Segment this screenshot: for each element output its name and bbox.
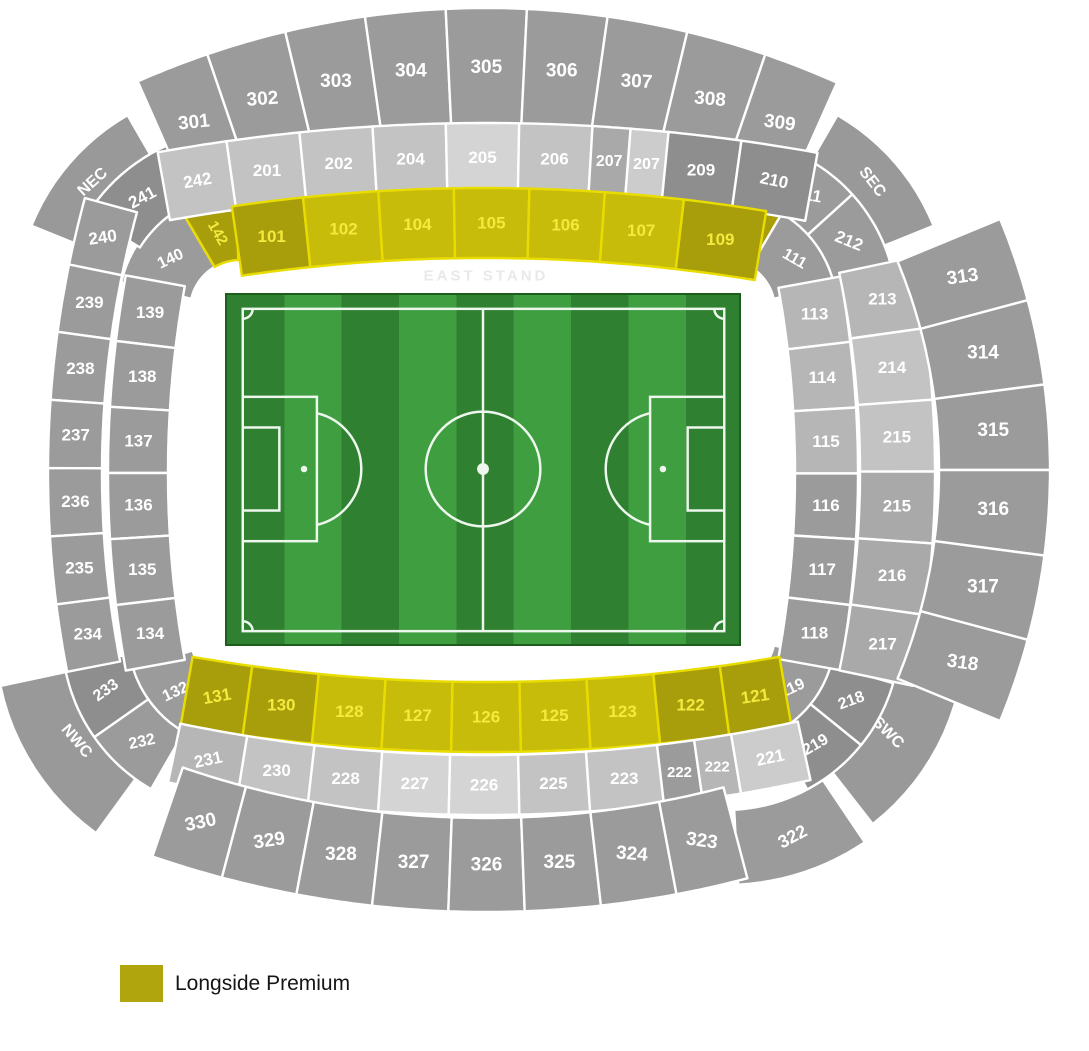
section-127[interactable]: 127: [382, 679, 453, 752]
section-106[interactable]: 106: [528, 189, 605, 262]
section-238[interactable]: 238: [51, 332, 112, 404]
section-215[interactable]: 215: [858, 400, 935, 472]
section-label-303: 303: [320, 71, 352, 92]
section-label-302: 302: [246, 88, 279, 111]
section-label-105: 105: [477, 214, 505, 233]
section-114[interactable]: 114: [788, 342, 857, 411]
left-penalty-spot: [301, 466, 307, 472]
section-label-117: 117: [808, 560, 835, 579]
section-116[interactable]: 116: [793, 473, 858, 539]
section-214[interactable]: 214: [851, 328, 933, 405]
right-goal-area: [688, 427, 725, 510]
section-label-102: 102: [329, 219, 357, 238]
section-label-213: 213: [868, 290, 896, 309]
section-label-235: 235: [65, 558, 93, 577]
section-label-109: 109: [706, 230, 734, 249]
section-136[interactable]: 136: [108, 473, 170, 539]
section-label-239: 239: [75, 293, 103, 312]
legend: Longside Premium: [120, 965, 350, 1002]
section-label-114: 114: [808, 368, 836, 387]
section-204[interactable]: 204: [373, 123, 448, 195]
section-label-104: 104: [403, 215, 432, 234]
corner-arc: [243, 309, 253, 319]
section-label-115: 115: [812, 432, 839, 451]
center-spot: [478, 464, 489, 475]
section-323[interactable]: 323: [659, 787, 747, 894]
section-123[interactable]: 123: [587, 674, 661, 749]
section-label-222: 222: [667, 764, 692, 781]
section-207[interactable]: 207: [589, 126, 631, 197]
section-label-135: 135: [128, 560, 156, 579]
section-113[interactable]: 113: [778, 277, 850, 350]
section-216[interactable]: 216: [851, 538, 933, 615]
section-226[interactable]: 226: [449, 755, 520, 815]
section-215[interactable]: 215: [858, 472, 935, 544]
section-label-323: 323: [685, 828, 719, 853]
section-205[interactable]: 205: [446, 123, 519, 192]
section-202[interactable]: 202: [299, 127, 376, 202]
section-label-215: 215: [883, 497, 911, 516]
section-label-318: 318: [945, 650, 979, 675]
section-label-308: 308: [693, 87, 726, 111]
section-242[interactable]: 242: [158, 141, 237, 220]
section-label-314: 314: [967, 342, 999, 363]
section-239[interactable]: 239: [58, 265, 122, 340]
section-label-315: 315: [977, 420, 1009, 441]
section-label-137: 137: [124, 431, 152, 450]
section-label-306: 306: [546, 61, 578, 82]
section-label-134: 134: [136, 624, 165, 643]
section-label-122: 122: [677, 696, 705, 715]
section-235[interactable]: 235: [50, 533, 110, 604]
section-125[interactable]: 125: [520, 679, 591, 752]
section-122[interactable]: 122: [653, 666, 729, 743]
section-126[interactable]: 126: [451, 682, 521, 752]
section-label-127: 127: [403, 706, 431, 725]
section-label-307: 307: [620, 70, 653, 93]
section-128[interactable]: 128: [312, 674, 386, 749]
section-322[interactable]: 322: [734, 780, 865, 885]
section-223[interactable]: 223: [586, 745, 664, 812]
section-label-121: 121: [740, 685, 771, 708]
section-228[interactable]: 228: [308, 745, 383, 811]
section-304[interactable]: 304: [365, 9, 451, 134]
section-115[interactable]: 115: [793, 408, 858, 474]
section-label-206: 206: [540, 149, 568, 168]
section-315[interactable]: 315: [934, 384, 1050, 470]
section-label-329: 329: [252, 828, 286, 853]
section-107[interactable]: 107: [600, 192, 684, 269]
section-225[interactable]: 225: [518, 752, 590, 815]
section-206[interactable]: 206: [518, 123, 593, 195]
section-label-128: 128: [335, 702, 363, 721]
section-label-324: 324: [615, 842, 649, 866]
left-penalty-arc: [317, 413, 361, 525]
pitch: [225, 293, 741, 646]
section-327[interactable]: 327: [372, 812, 452, 911]
section-label-309: 309: [763, 110, 797, 135]
section-137[interactable]: 137: [108, 407, 170, 473]
section-label-230: 230: [263, 761, 291, 780]
section-label-240: 240: [87, 226, 118, 249]
section-label-222: 222: [705, 758, 730, 775]
section-326[interactable]: 326: [448, 817, 524, 912]
pitch-markings: [227, 295, 739, 644]
section-label-123: 123: [608, 702, 636, 721]
stand-label-east: EAST STAND: [424, 268, 549, 285]
section-label-228: 228: [331, 769, 359, 788]
section-label-138: 138: [128, 367, 156, 386]
section-label-130: 130: [267, 696, 295, 715]
section-label-136: 136: [124, 496, 152, 515]
section-label-236: 236: [61, 492, 89, 511]
section-label-238: 238: [66, 359, 94, 378]
section-138[interactable]: 138: [110, 341, 176, 411]
section-121[interactable]: 121: [720, 657, 792, 736]
section-label-215: 215: [883, 427, 911, 446]
stadium-seating-map: NECSECNWCSWC1401421101112412112121322322…: [0, 0, 1089, 1051]
section-109[interactable]: 109: [676, 200, 766, 281]
section-label-207: 207: [633, 156, 660, 173]
section-label-204: 204: [396, 150, 425, 169]
section-label-226: 226: [470, 776, 498, 795]
section-label-118: 118: [801, 624, 828, 643]
section-label-317: 317: [967, 577, 999, 598]
section-236[interactable]: 236: [48, 468, 104, 536]
section-104[interactable]: 104: [378, 188, 455, 261]
section-label-205: 205: [468, 148, 496, 167]
corner-arc: [714, 309, 724, 319]
section-label-301: 301: [177, 110, 211, 134]
section-label-304: 304: [395, 61, 427, 82]
section-label-107: 107: [627, 221, 655, 240]
right-penalty-spot: [660, 466, 666, 472]
section-label-125: 125: [540, 706, 568, 725]
section-label-227: 227: [401, 774, 429, 793]
section-237[interactable]: 237: [48, 400, 104, 469]
section-325[interactable]: 325: [521, 812, 601, 911]
section-label-316: 316: [977, 499, 1009, 520]
section-label-326: 326: [471, 855, 503, 876]
section-118[interactable]: 118: [778, 598, 850, 671]
left-goal-area: [243, 427, 280, 510]
section-label-216: 216: [878, 566, 906, 585]
section-label-234: 234: [74, 624, 103, 643]
section-105[interactable]: 105: [454, 188, 530, 259]
section-221[interactable]: 221: [731, 722, 810, 794]
corner-arc: [243, 621, 253, 631]
section-134[interactable]: 134: [116, 598, 185, 671]
section-234[interactable]: 234: [56, 598, 120, 672]
section-label-305: 305: [470, 57, 502, 78]
section-135[interactable]: 135: [110, 536, 176, 606]
corner-arc: [714, 621, 724, 631]
section-label-237: 237: [62, 425, 90, 444]
section-label-313: 313: [945, 264, 979, 289]
section-label-201: 201: [253, 161, 281, 180]
section-305[interactable]: 305: [446, 8, 527, 128]
section-label-202: 202: [325, 154, 353, 173]
section-227[interactable]: 227: [378, 752, 450, 815]
section-label-106: 106: [551, 216, 579, 235]
section-label-209: 209: [687, 161, 715, 180]
section-label-207: 207: [596, 153, 623, 170]
section-label-217: 217: [868, 635, 896, 654]
section-101[interactable]: 101: [232, 198, 310, 276]
section-label-116: 116: [812, 496, 839, 515]
section-label-113: 113: [801, 304, 828, 323]
section-label-139: 139: [136, 303, 164, 322]
section-139[interactable]: 139: [116, 275, 185, 348]
section-label-101: 101: [258, 227, 286, 246]
section-131[interactable]: 131: [181, 657, 253, 736]
legend-swatch-longside-premium: [120, 965, 163, 1002]
section-102[interactable]: 102: [303, 191, 383, 267]
section-130[interactable]: 130: [243, 666, 319, 743]
right-penalty-arc: [606, 413, 650, 525]
section-label-225: 225: [539, 774, 567, 793]
section-label-223: 223: [610, 769, 638, 788]
section-label-325: 325: [544, 852, 576, 873]
section-label-327: 327: [398, 852, 430, 873]
section-label-126: 126: [472, 708, 500, 727]
section-label-328: 328: [325, 844, 357, 865]
legend-label: Longside Premium: [175, 972, 350, 996]
section-117[interactable]: 117: [788, 536, 857, 606]
section-label-214: 214: [878, 358, 907, 377]
